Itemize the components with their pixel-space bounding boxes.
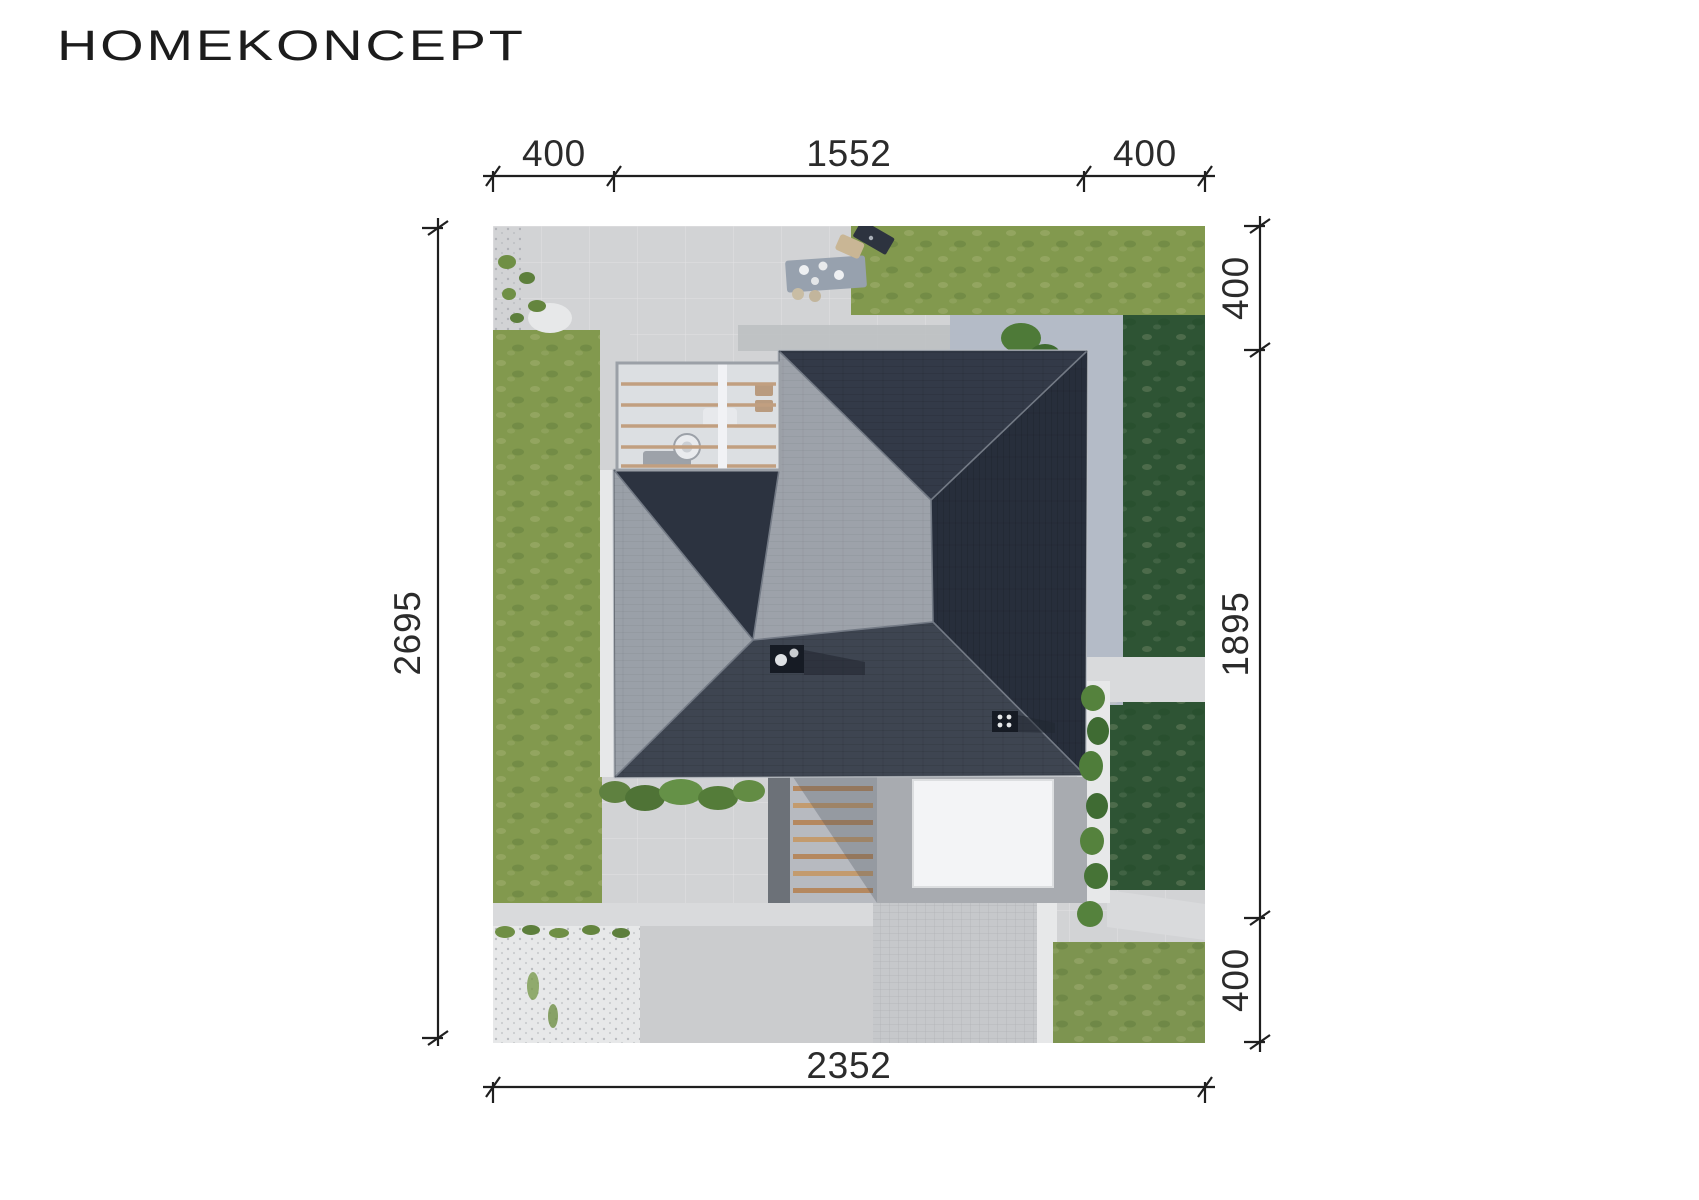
gravel-bl-texture — [493, 926, 640, 1043]
grass-tx-1 — [851, 226, 1205, 315]
grass-tx-4 — [1110, 702, 1205, 890]
carport-slats — [768, 777, 877, 903]
back-path-band — [493, 903, 873, 926]
dim-top-left: 400 — [504, 134, 604, 174]
garage-skylight — [913, 780, 1053, 887]
glass-pergola — [617, 363, 780, 470]
house-shadow-band — [738, 325, 950, 351]
dim-bottom-total: 2352 — [779, 1046, 919, 1086]
dim-top-center: 1552 — [779, 134, 919, 174]
gravel-strip-house-left — [600, 470, 614, 777]
grass-tx-5 — [1053, 942, 1205, 1043]
grass-tx-2 — [493, 330, 602, 903]
paving-band-right — [1087, 315, 1123, 705]
dim-right-upper: 400 — [1216, 238, 1256, 338]
page: HOMEKONCEPT — [0, 0, 1699, 1200]
dim-right-lower: 400 — [1216, 930, 1256, 1030]
grass-tx-3 — [1123, 315, 1205, 657]
dim-top-right: 400 — [1095, 134, 1195, 174]
dim-right-middle: 1895 — [1216, 564, 1256, 704]
site-render — [493, 226, 1205, 1043]
brand-logo: HOMEKONCEPT — [57, 22, 526, 71]
driveway — [640, 926, 873, 1043]
pavers-texture — [873, 903, 1037, 1043]
dim-left-total: 2695 — [388, 563, 428, 703]
